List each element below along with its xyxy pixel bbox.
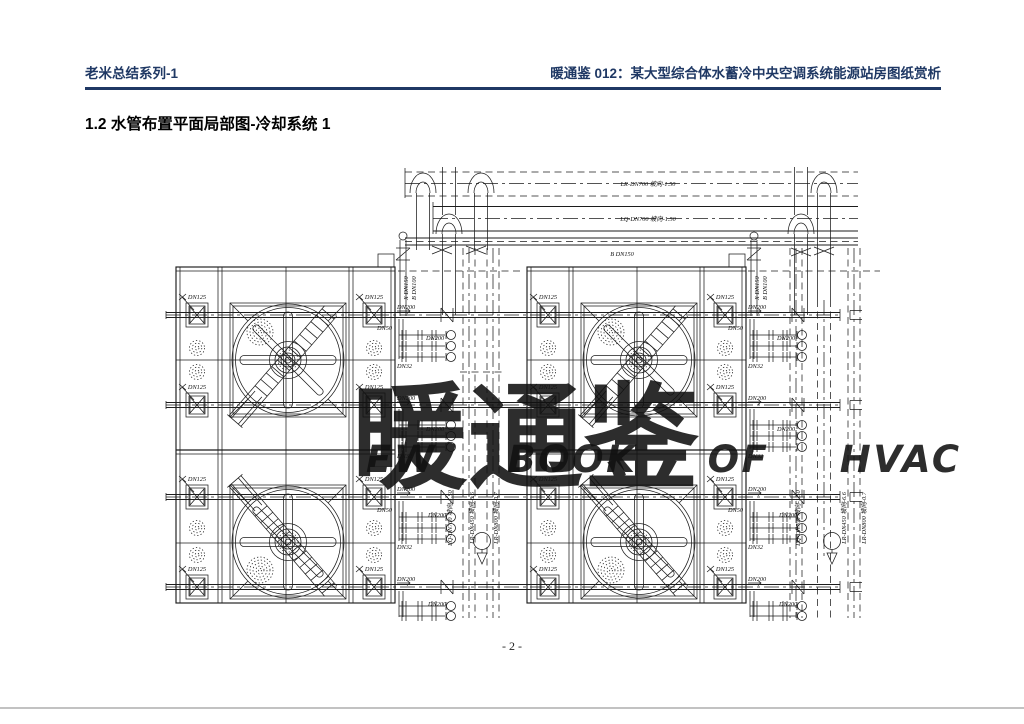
pipe-label: DN32 <box>747 363 764 370</box>
pipe-label: DN200 <box>747 395 767 402</box>
valve-label: DN125 <box>187 384 206 391</box>
pipe-label: DN200 <box>776 335 796 342</box>
watermark-sub-text: EW BOOK OF HVAC <box>366 438 961 481</box>
valve-label: DN125 <box>364 294 383 301</box>
pipe-label: LQ-DN700 坡向-1.50 <box>619 215 676 223</box>
valve-label: DN125 <box>715 566 734 573</box>
valve-label: DN50 <box>376 507 393 514</box>
valve-label: DN125 <box>187 294 206 301</box>
riser-label: LQ-DN700 坡向-1.50 <box>794 489 802 546</box>
valve-label: DN125 <box>538 566 557 573</box>
pipe-label: DN200 <box>427 512 447 519</box>
pipe-label: LR-DN700 坡向-1.50 <box>620 180 677 188</box>
pipe-label: DN32 <box>396 363 413 370</box>
riser-label: B DN100 <box>411 276 418 300</box>
pipe-label: DN200 <box>396 576 416 583</box>
top-pipe-runs <box>405 168 858 245</box>
valve-label: DN125 <box>187 476 206 483</box>
riser-label: X DN150 <box>754 276 761 301</box>
pipe-label: DN200 <box>396 304 416 311</box>
pipe-label: DN200 <box>427 601 447 608</box>
pipe-label: DN32 <box>396 544 413 551</box>
pipe-label: DN200 <box>747 304 767 311</box>
valve-label: DN125 <box>364 566 383 573</box>
pipe-label: DN200 <box>747 486 767 493</box>
pipe-label: DN200 <box>425 335 445 342</box>
document-page: { "header": { "series": "老米总结系列-1", "tit… <box>0 0 1024 724</box>
riser-label: X DN150 <box>403 276 410 301</box>
watermark: 暖通鉴 EW BOOK OF HVAC <box>352 372 961 506</box>
riser-label: LR-DN450 坡向-6.6 <box>840 491 848 545</box>
riser-label: LR-DN800 坡向-0.7 <box>860 491 868 545</box>
page-number: - 2 - <box>0 639 1024 654</box>
valve-label: DN125 <box>715 384 734 391</box>
valve-label: DN50 <box>376 325 393 332</box>
pipe-label: DN200 <box>747 576 767 583</box>
valve-label: DN125 <box>715 294 734 301</box>
valve-label: DN50 <box>727 325 744 332</box>
pipe-crossover-arches <box>410 167 837 315</box>
page-edge-line <box>0 707 1024 709</box>
riser-label: B DN100 <box>762 276 769 300</box>
pipe-label: B DN150 <box>610 251 634 258</box>
valve-label: DN50 <box>727 507 744 514</box>
valve-label: DN125 <box>538 294 557 301</box>
pipe-label: DN200 <box>776 426 796 433</box>
pipe-label: DN200 <box>778 601 798 608</box>
pipe-label: DN32 <box>747 544 764 551</box>
piping-plan-drawing: LR-DN700 坡向-1.50 LQ-DN700 坡向-1.50 B DN15… <box>0 0 1024 724</box>
valve-label: DN125 <box>187 566 206 573</box>
